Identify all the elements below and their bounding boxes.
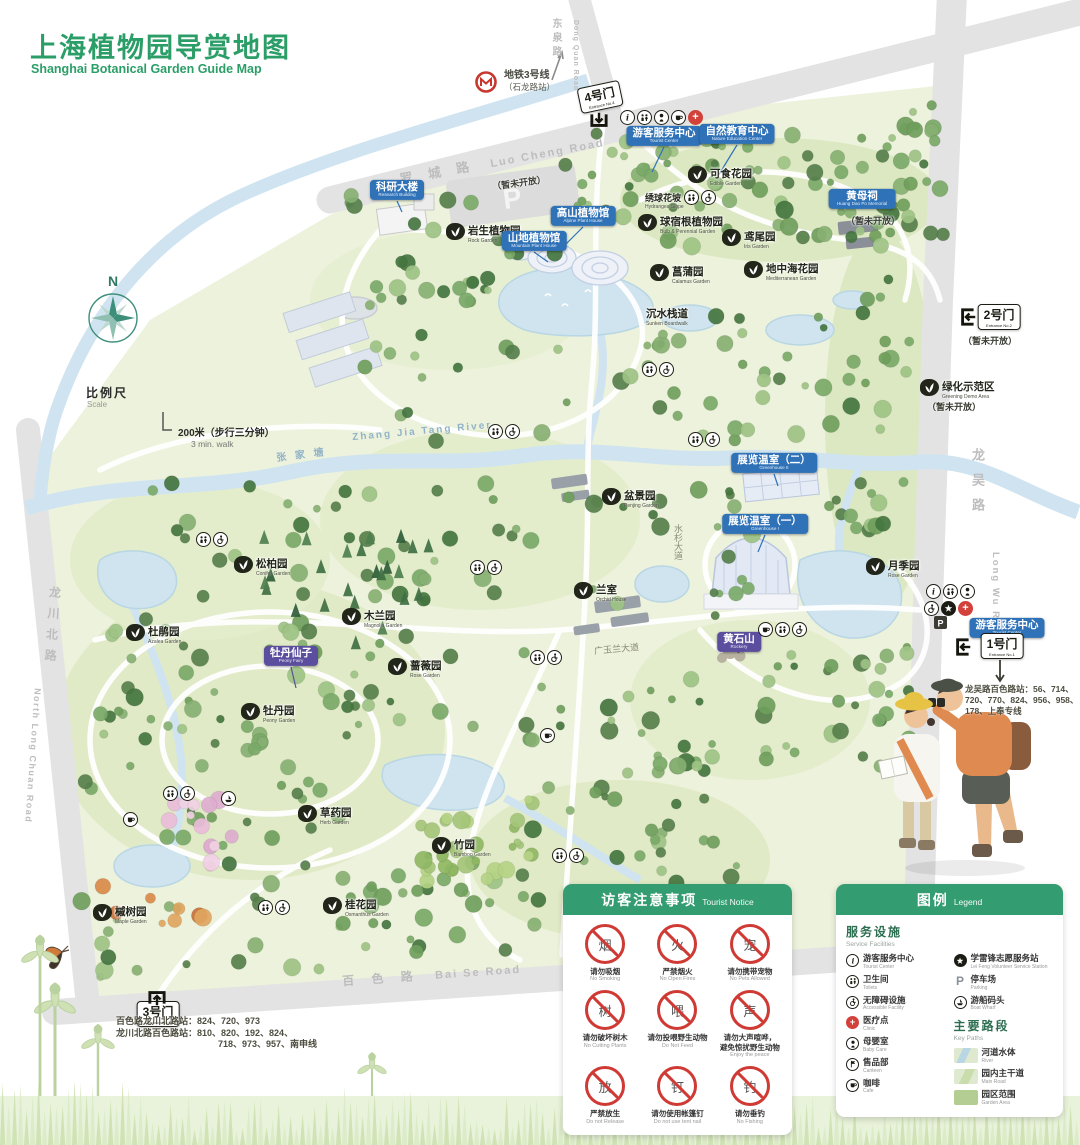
map-label-huangmu-temple: 黄母祠Huang Dao Po Memorial: [829, 189, 896, 209]
map-label-greenhouse-1: 展览温室（一）Greenhouse I: [722, 514, 808, 534]
map-label-penjing-garden: 盆景园Penjing Garden: [602, 488, 659, 509]
map-label-osmanthus-garden: 桂花园Osmanthus Garden: [323, 897, 389, 918]
accessible-icon: [547, 650, 562, 665]
plant-icon: [93, 904, 112, 921]
scale-walk-time: 3 min. walk: [191, 439, 234, 449]
road-label-dongquan: 东泉路: [548, 18, 563, 60]
clinic-icon: +: [688, 110, 703, 125]
facility-icons: [123, 812, 138, 827]
gate-1: 1号门Entrance No.1: [981, 633, 1024, 659]
map-label-mediterranean-garden: 地中海花园Mediterranean Garden: [744, 261, 819, 282]
page-title: 上海植物园导赏地图: [30, 26, 291, 65]
accessible-icon: [487, 560, 502, 575]
plant-icon: [432, 837, 451, 854]
scale-distance: 200米（步行三分钟）: [178, 424, 275, 439]
legend-river: 河道水体River: [954, 1048, 1054, 1064]
legend-canteen: 售品部Canteen: [846, 1058, 946, 1074]
map-label-demo-area: 绿化示范区Greening Demo Area: [920, 379, 995, 400]
plant-icon: [388, 658, 407, 675]
toilet-icon: [684, 190, 699, 205]
legend-header: 图例Legend: [836, 884, 1063, 915]
bus-routes-gate1: 龙吴路百色路站：56、714、 720、770、824、956、958、 178…: [965, 684, 1078, 717]
facility-icons: [684, 190, 716, 205]
plant-icon: [241, 703, 260, 720]
map-label-calamus-garden: 菖蒲园Calamus Garden: [650, 264, 710, 285]
facility-icons-gate1-row1: [926, 584, 975, 599]
map-label-sunken-boardwalk: 沉水栈道Sunken Boardwalk: [646, 306, 688, 327]
parking-icon: P: [954, 975, 967, 988]
no-cutting-icon: 树: [585, 990, 625, 1030]
facility-icons: [196, 532, 228, 547]
map-label-rose-garden-west: 蔷薇园Rose Garden: [388, 658, 442, 679]
notice-no-smoking: 烟请勿吸烟No Smoking: [569, 924, 641, 982]
no-smoking-icon: 烟: [585, 924, 625, 964]
map-label-perennial-garden: 球宿根植物园Bulb & Perennial Garden: [638, 214, 723, 235]
gate-1-icon: [951, 636, 973, 658]
svg-text:N: N: [108, 273, 118, 289]
facility-icons: [163, 786, 195, 801]
plant-icon: [234, 556, 253, 573]
scale-title-en: Scale: [87, 400, 107, 409]
legend-garden-area: 园区范围Garden Area: [954, 1090, 1054, 1106]
accessible-icon: [705, 432, 720, 447]
accessible-icon: [180, 786, 195, 801]
accessible-icon: [846, 996, 859, 1009]
no-tent-nail-icon: 钉: [657, 1066, 697, 1106]
tourist-notice-panel: 访客注意事项Tourist Notice 烟请勿吸烟No Smoking 火严禁…: [563, 884, 792, 1135]
legend-parking: P停车场Parking: [954, 975, 1054, 991]
tourist-notice-grid: 烟请勿吸烟No Smoking 火严禁烟火No Open Fires 宠请勿携带…: [563, 915, 792, 1135]
map-label-herb-garden: 草药园Herb Garden: [298, 805, 352, 826]
plant-icon: [688, 166, 707, 183]
facility-icons: [642, 362, 674, 377]
toilet-icon: [943, 584, 958, 599]
volunteer-station-icon: [941, 601, 956, 616]
notice-no-pets: 宠请勿携带宠物No Pets Allowed: [714, 924, 786, 982]
legend-volunteer-station: 学雷锋志愿服务站Lei Feng Volunteer Service Stati…: [954, 954, 1054, 970]
legend-panel: 图例Legend 服务设施 Service Facilities 游客服务中心T…: [836, 884, 1063, 1117]
plant-icon: [650, 264, 669, 281]
map-label-edible-garden: 可食花园Edible Garden: [688, 166, 752, 187]
plant-icon: [446, 223, 465, 240]
facility-icons-gate1-row2: +: [924, 601, 973, 616]
gate-2-icon: [956, 306, 978, 328]
tourist-notice-header: 访客注意事项Tourist Notice: [563, 884, 792, 915]
cafe-icon: [540, 728, 555, 743]
legend-services-left: 游客服务中心Tourist Center 卫生间Toilets 无障碍设施Acc…: [846, 954, 946, 1111]
legend-paths-title: 主要路段: [954, 1017, 1054, 1034]
cafe-icon: [758, 622, 773, 637]
legend-baby-care: 母婴室Baby Care: [846, 1037, 946, 1053]
map-label-hydrangea-slope: 绣球花坡Hydrangea Slope: [645, 191, 684, 210]
no-pets-icon: 宠: [730, 924, 770, 964]
plant-icon: [920, 379, 939, 396]
clinic-icon: +: [958, 601, 973, 616]
avenue-label-shuishan: 水杉大道: [672, 524, 685, 560]
notice-no-release: 放严禁放生Do not Release: [569, 1066, 641, 1124]
accessible-icon: [659, 362, 674, 377]
accessible-icon: [792, 622, 807, 637]
notice-no-feeding: 喂请勿投喂野生动物Do Not Feed: [641, 990, 713, 1058]
info-icon: [620, 110, 635, 125]
page-subtitle: Shanghai Botanical Garden Guide Map: [31, 62, 262, 76]
no-release-icon: 放: [585, 1066, 625, 1106]
toilet-icon: [470, 560, 485, 575]
toilet-icon: [688, 432, 703, 447]
clinic-icon: +: [846, 1016, 859, 1029]
metro-station: （石龙路站）: [504, 82, 555, 93]
map-label-peony-garden: 牡丹园Peony Garden: [241, 703, 295, 724]
info-icon: [846, 954, 859, 967]
map-label-conifer-garden: 松柏园Conifer Garden: [234, 556, 290, 577]
map-label-tourist-center-north: 游客服务中心Tourist Center: [627, 126, 702, 146]
facility-icons: [221, 791, 236, 806]
garden-area-swatch: [954, 1090, 978, 1105]
legend-clinic: +医疗点Clinic: [846, 1016, 946, 1032]
plant-icon: [126, 624, 145, 641]
map-label-azalea-garden: 杜鹃园Azalea Garden: [126, 624, 181, 645]
toilet-icon: [846, 975, 859, 988]
legend-services-title-en: Service Facilities: [846, 941, 1053, 948]
huangmu-closed-note: （暂未开放）: [846, 214, 900, 227]
toilet-icon: [552, 848, 567, 863]
gate-4-icon: [588, 110, 610, 132]
plant-icon: [602, 488, 621, 505]
toilet-icon: [196, 532, 211, 547]
baby-care-icon: [960, 584, 975, 599]
map-label-peony-fairy: 牡丹仙子Peony Fairy: [264, 646, 318, 666]
accessible-icon: [701, 190, 716, 205]
accessible-icon: [924, 601, 939, 616]
toilet-icon: [488, 424, 503, 439]
facility-icons: [470, 560, 502, 575]
map-label-rockery: 黄石山Rockery: [717, 632, 761, 652]
cafe-icon: [123, 812, 138, 827]
legend-services-right: 学雷锋志愿服务站Lei Feng Volunteer Service Stati…: [954, 954, 1054, 1111]
notice-no-cutting: 树请勿破坏树木No Cutting Plants: [569, 990, 641, 1058]
accessible-icon: [213, 532, 228, 547]
map-label-mountain-plant-house: 山地植物馆Mountain Plant House: [502, 231, 567, 251]
no-feeding-icon: 喂: [657, 990, 697, 1030]
gate-2-closed-note: （暂未开放）: [963, 334, 1017, 347]
toilet-icon: [530, 650, 545, 665]
no-fire-icon: 火: [657, 924, 697, 964]
legend-services-title: 服务设施: [846, 923, 1053, 940]
main-road-swatch: [954, 1069, 978, 1084]
facility-icons: [258, 900, 290, 915]
toilet-icon: [775, 622, 790, 637]
notice-no-fishing: 钓请勿垂钓No Fishing: [714, 1066, 786, 1124]
boat-wharf-icon: [954, 996, 967, 1009]
map-label-greenhouse-2: 展览温室（二）Greenhouse II: [731, 453, 817, 473]
legend-cafe: 咖啡Cafe: [846, 1079, 946, 1095]
accessible-icon: [505, 424, 520, 439]
plant-icon: [323, 897, 342, 914]
no-noise-icon: 声: [730, 990, 770, 1030]
svg-text:P: P: [937, 619, 943, 629]
plant-icon: [744, 261, 763, 278]
map-label-maple-garden: 槭树园Maple Garden: [93, 904, 147, 925]
gate-3-icon: [146, 986, 168, 1008]
map-label-magnolia-garden: 木兰园Magnolia Garden: [342, 608, 402, 629]
accessible-icon: [569, 848, 584, 863]
facility-icons-gate4: +: [620, 110, 703, 125]
facility-icons: [552, 848, 584, 863]
plant-icon: [638, 214, 657, 231]
legend-toilets: 卫生间Toilets: [846, 975, 946, 991]
facility-icons: [530, 650, 562, 665]
plant-icon: [574, 582, 593, 599]
boat-wharf-icon: [221, 791, 236, 806]
demo-area-closed-note: （暂未开放）: [927, 400, 981, 413]
map-label-bamboo-garden: 竹园Bamboo Garden: [432, 837, 491, 858]
plant-icon: [298, 805, 317, 822]
legend-boat-wharf: 游船码头Boat Wharf: [954, 996, 1054, 1012]
scale-title: 比例尺: [86, 384, 128, 401]
volunteer-station-icon: [954, 954, 967, 967]
map-label-alpine-plant-house: 高山植物馆Alpine Plant House: [551, 206, 616, 226]
river-swatch: [954, 1048, 978, 1063]
legend-main-road: 园内主干道Main Road: [954, 1069, 1054, 1085]
gate1-arrow: [996, 660, 1004, 681]
map-label-orchid-house: 兰室Orchid House: [574, 582, 627, 603]
info-icon: [926, 584, 941, 599]
gate-2: 2号门Entrance No.2: [978, 304, 1021, 330]
baby-care-icon: [654, 110, 669, 125]
plant-icon: [866, 558, 885, 575]
shop-icon: [846, 1058, 859, 1071]
toilet-icon: [163, 786, 178, 801]
facility-icons: [758, 622, 807, 637]
legend-paths-title-en: Key Paths: [954, 1035, 1054, 1042]
metro-logo-icon: [474, 70, 498, 94]
map-label-nature-education-center: 自然教育中心Nature Education Center: [700, 124, 775, 144]
map-label-iris-garden: 鸢尾园Iris Garden: [722, 229, 776, 250]
notice-no-tent-nails: 钉请勿使用帐篷钉Do not use tent nail: [641, 1066, 713, 1124]
legend-tourist-center: 游客服务中心Tourist Center: [846, 954, 946, 970]
plant-icon: [342, 608, 361, 625]
facility-icons: [488, 424, 520, 439]
notice-no-open-fires: 火严禁烟火No Open Fires: [641, 924, 713, 982]
toilet-icon: [258, 900, 273, 915]
road-label-longwu: 龙吴路: [968, 448, 987, 523]
cafe-icon: [671, 110, 686, 125]
cafe-icon: [846, 1079, 859, 1092]
map-label-research-building: 科研大楼Research Building: [370, 180, 424, 200]
no-fishing-icon: 钓: [730, 1066, 770, 1106]
bus-routes-gate3: 百色路龙川北路站：824、720、973 龙川北路百色路站：810、820、19…: [116, 1016, 317, 1051]
botanical-garden-map: i: [0, 0, 1080, 1145]
legend-accessible: 无障碍设施Accessible Facility: [846, 996, 946, 1012]
toilet-icon: [642, 362, 657, 377]
metro-line: 地铁3号线: [504, 70, 550, 81]
road-label-dongquan-en: Dong Quan Road: [572, 20, 579, 91]
toilet-icon: [637, 110, 652, 125]
facility-icons: [688, 432, 720, 447]
plant-icon: [722, 229, 741, 246]
map-label-rose-garden-east: 月季园Rose Garden: [866, 558, 920, 579]
accessible-icon: [275, 900, 290, 915]
notice-keep-quiet: 声请勿大声喧哗，避免惊扰野生动物Enjoy the peace: [714, 990, 786, 1058]
metro-label: 地铁3号线 （石龙路站）: [504, 69, 555, 93]
facility-icons: [540, 728, 555, 743]
baby-care-icon: [846, 1037, 859, 1050]
